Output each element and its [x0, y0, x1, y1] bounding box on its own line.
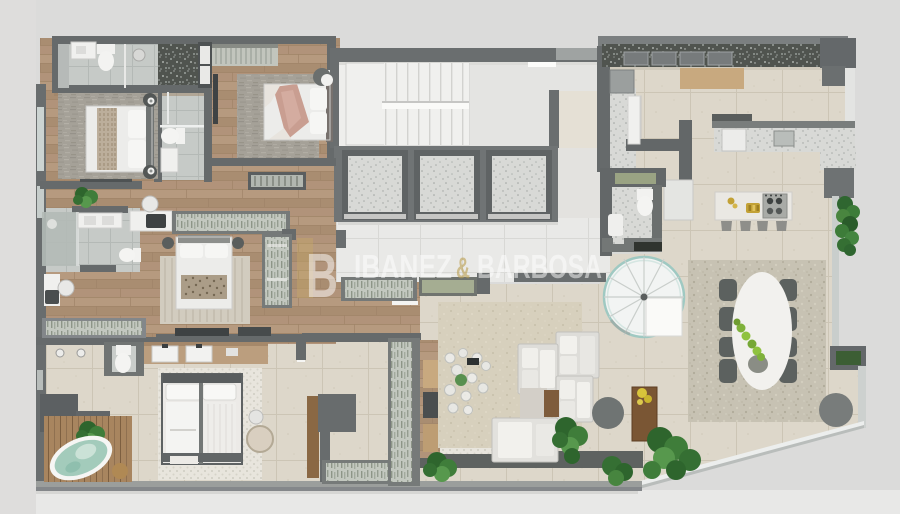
svg-text:B: B [306, 242, 338, 311]
svg-text:IBANEZ: IBANEZ [354, 248, 452, 285]
svg-text:BARBOSA: BARBOSA [477, 248, 602, 285]
svg-text:&: & [456, 252, 470, 285]
